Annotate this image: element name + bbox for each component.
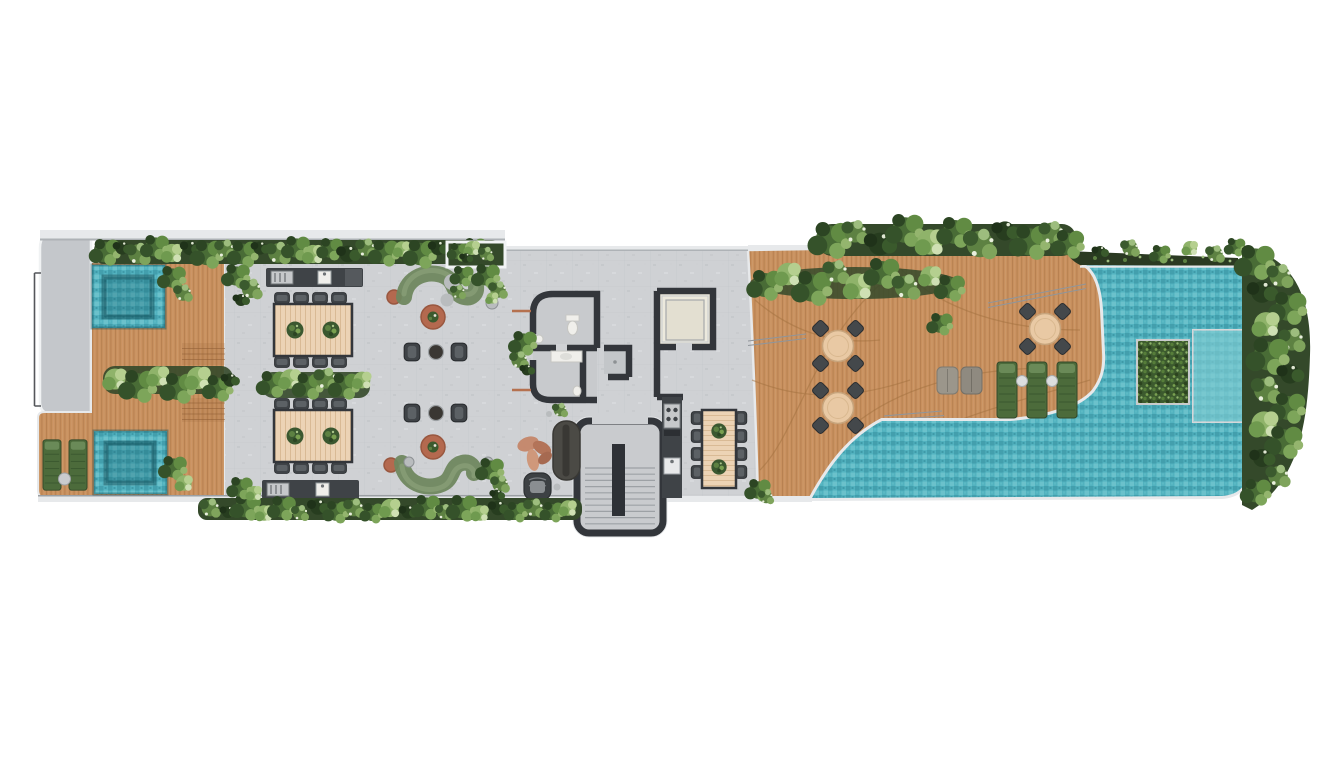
grill [267, 483, 289, 496]
boulder [441, 294, 454, 307]
floor-plan-page [0, 0, 1332, 761]
coffee-table [421, 305, 445, 329]
dining-table-1 [274, 293, 352, 368]
planting-band-right [1234, 245, 1310, 510]
side-table [1047, 376, 1058, 387]
submerged-ledge [1193, 330, 1248, 422]
side-table [59, 473, 71, 485]
core-dining-table [691, 410, 747, 488]
staircase [574, 413, 666, 536]
planting-band-top-right [808, 214, 1085, 260]
round-side-table [429, 345, 444, 360]
side-table [1017, 376, 1028, 387]
floor-plan-canvas [0, 0, 1332, 761]
lounge-armchairs-row1 [404, 343, 467, 361]
pool-planted-island [1137, 340, 1189, 404]
cooktop [664, 404, 680, 428]
grill [271, 271, 293, 284]
dining-table-2 [274, 399, 352, 474]
plunge-pool-bottom [94, 431, 167, 494]
sink-pedestal [573, 386, 581, 396]
planting-band-top-left [89, 235, 502, 269]
dining-hedgerow [256, 368, 372, 400]
toilet-bowl [568, 321, 578, 335]
plunge-pool-top [92, 265, 165, 328]
stair-divider-wall [612, 444, 625, 516]
bbq-station-top [266, 268, 363, 287]
stair-entry [592, 413, 648, 424]
wicker-chair [524, 473, 551, 500]
deck-hedgerow [102, 366, 240, 404]
coffee-table [421, 435, 445, 459]
elevator [660, 294, 710, 344]
kitchenette [662, 397, 682, 498]
elevator-door-gap [676, 343, 692, 351]
sun-loungers-pool [997, 362, 1077, 418]
lounge-armchairs-row2 [404, 404, 467, 422]
round-side-table [429, 406, 444, 421]
left-walkway-strip [40, 232, 91, 414]
toilet-tank [566, 315, 579, 321]
